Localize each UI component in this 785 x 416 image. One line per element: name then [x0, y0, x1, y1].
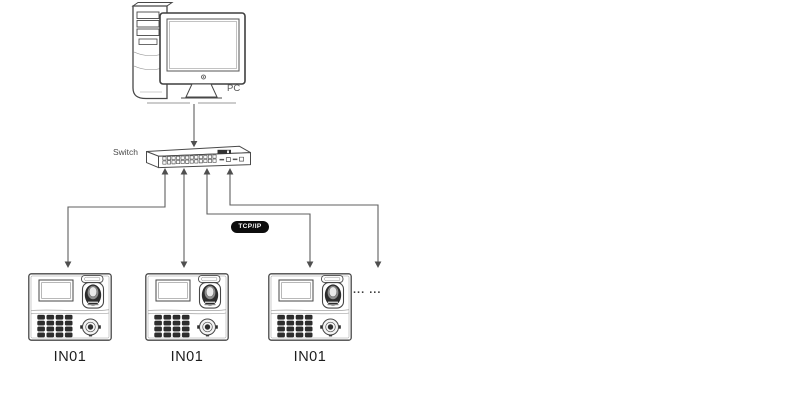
- pc-label: PC: [227, 83, 240, 94]
- edge-switch-more-devices: [227, 168, 382, 268]
- device-label-1: IN01: [28, 349, 112, 365]
- tcpip-protocol-badge: TCP/IP: [231, 221, 269, 233]
- terminal-device-1: [29, 274, 111, 340]
- edge-switch-device-3: [204, 168, 314, 268]
- edge-pc-switch: [191, 104, 198, 147]
- terminal-device-2: [146, 274, 228, 340]
- switch-label: Switch: [98, 147, 138, 157]
- diagram-artwork: [0, 0, 785, 416]
- edge-switch-device-2: [181, 168, 188, 268]
- more-devices-ellipsis: ... ...: [353, 284, 381, 296]
- device-label-2: IN01: [145, 349, 229, 365]
- network-topology-diagram: Switch PC TCP/IP IN01 IN01 IN01 ... ...: [0, 0, 785, 416]
- device-label-3: IN01: [268, 349, 352, 365]
- terminal-device-3: [269, 274, 351, 340]
- switch-icon: [147, 146, 251, 167]
- edge-switch-device-1: [65, 168, 169, 268]
